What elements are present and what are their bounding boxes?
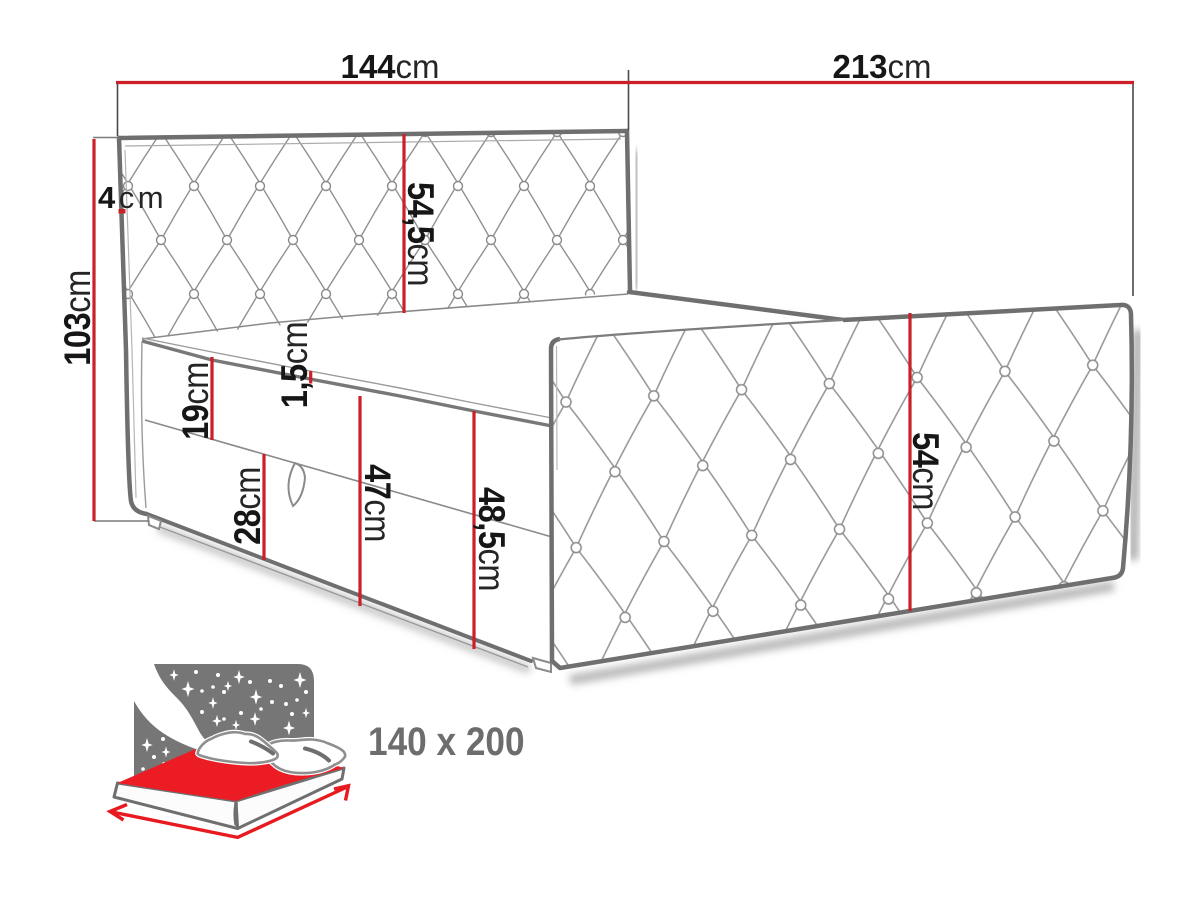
svg-text:47cm: 47cm	[357, 464, 398, 542]
svg-text:144cm: 144cm	[340, 48, 439, 85]
svg-text:140 x 200: 140 x 200	[368, 719, 525, 764]
svg-text:213cm: 213cm	[832, 48, 931, 85]
svg-text:28cm: 28cm	[227, 467, 268, 545]
svg-text:54cm: 54cm	[905, 432, 946, 510]
svg-text:54,5cm: 54,5cm	[400, 182, 441, 286]
svg-text:1,5cm: 1,5cm	[274, 322, 315, 408]
svg-text:48,5cm: 48,5cm	[471, 487, 512, 591]
svg-text:103cm: 103cm	[57, 270, 98, 366]
svg-text:4cm: 4cm	[98, 180, 167, 215]
svg-text:19cm: 19cm	[175, 362, 216, 440]
